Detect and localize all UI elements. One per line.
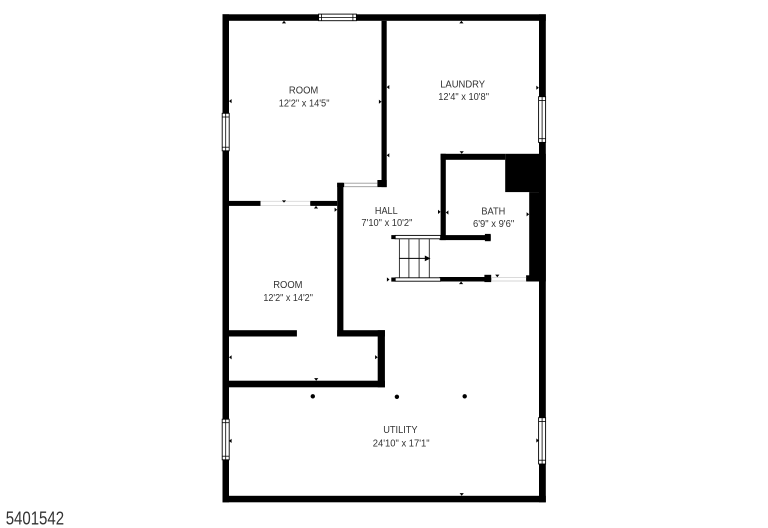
svg-text:12'2" x 14'2": 12'2" x 14'2" — [263, 293, 313, 304]
svg-text:ROOM: ROOM — [273, 280, 302, 291]
svg-text:24'10" x 17'1": 24'10" x 17'1" — [373, 439, 430, 450]
svg-text:6'9" x 9'6": 6'9" x 9'6" — [473, 219, 515, 230]
svg-text:UTILITY: UTILITY — [383, 425, 418, 436]
svg-text:7'10" x 10'2": 7'10" x 10'2" — [361, 218, 412, 229]
svg-text:12'4" x 10'8": 12'4" x 10'8" — [438, 92, 489, 103]
svg-text:5401542: 5401542 — [6, 509, 64, 528]
svg-text:BATH: BATH — [481, 206, 505, 217]
svg-text:12'2" x 14'5": 12'2" x 14'5" — [279, 99, 330, 110]
svg-text:LAUNDRY: LAUNDRY — [440, 80, 485, 91]
svg-text:HALL: HALL — [375, 206, 398, 217]
svg-text:ROOM: ROOM — [289, 86, 318, 97]
